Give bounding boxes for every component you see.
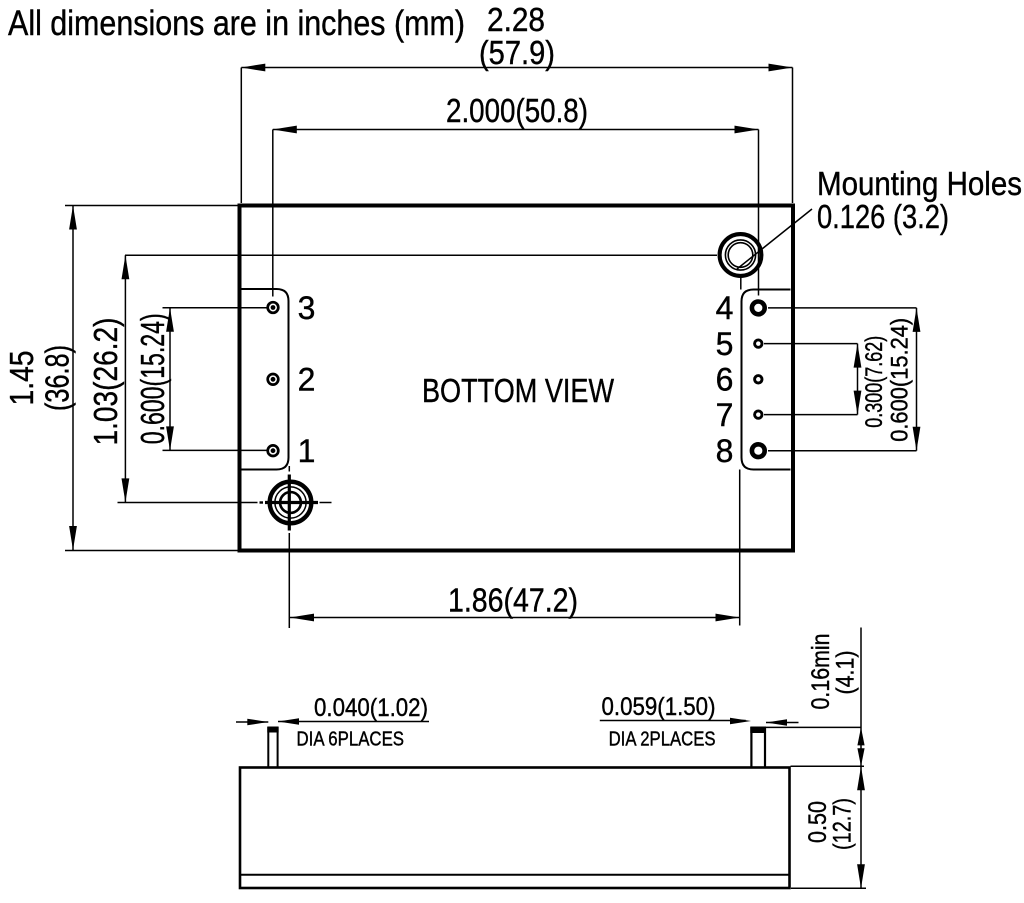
svg-text:0.300(7.62): 0.300(7.62) [861, 336, 888, 428]
svg-text:(57.9): (57.9) [479, 34, 555, 71]
svg-text:2: 2 [298, 362, 316, 398]
svg-text:2.28: 2.28 [487, 1, 545, 38]
svg-text:1.45: 1.45 [3, 351, 40, 406]
svg-text:5: 5 [716, 326, 734, 362]
svg-text:0.059(1.50): 0.059(1.50) [602, 693, 716, 721]
svg-text:0.600(15.24): 0.600(15.24) [134, 313, 171, 444]
svg-text:8: 8 [716, 433, 734, 469]
svg-text:All dimensions are in inches (: All dimensions are in inches (mm) [8, 4, 465, 43]
svg-text:1: 1 [298, 433, 316, 469]
svg-text:7: 7 [716, 397, 734, 433]
svg-text:DIA 2PLACES: DIA 2PLACES [609, 729, 716, 751]
svg-text:2.000(50.8): 2.000(50.8) [446, 92, 588, 129]
svg-text:(36.8): (36.8) [39, 345, 76, 411]
svg-text:3: 3 [298, 290, 316, 326]
svg-text:0.600(15.24): 0.600(15.24) [886, 318, 913, 442]
svg-text:(4.1): (4.1) [832, 651, 860, 695]
svg-text:1.03(26.2): 1.03(26.2) [87, 318, 124, 446]
svg-text:0.126 (3.2): 0.126 (3.2) [817, 198, 949, 235]
svg-text:1.86(47.2): 1.86(47.2) [448, 582, 578, 619]
svg-text:6: 6 [716, 362, 734, 398]
svg-text:(12.7): (12.7) [829, 798, 857, 850]
svg-text:Mounting Holes: Mounting Holes [817, 165, 1022, 202]
svg-text:0.040(1.02): 0.040(1.02) [314, 694, 428, 722]
svg-text:BOTTOM VIEW: BOTTOM VIEW [422, 372, 615, 409]
svg-text:4: 4 [716, 290, 734, 326]
svg-text:DIA 6PLACES: DIA 6PLACES [297, 729, 405, 751]
